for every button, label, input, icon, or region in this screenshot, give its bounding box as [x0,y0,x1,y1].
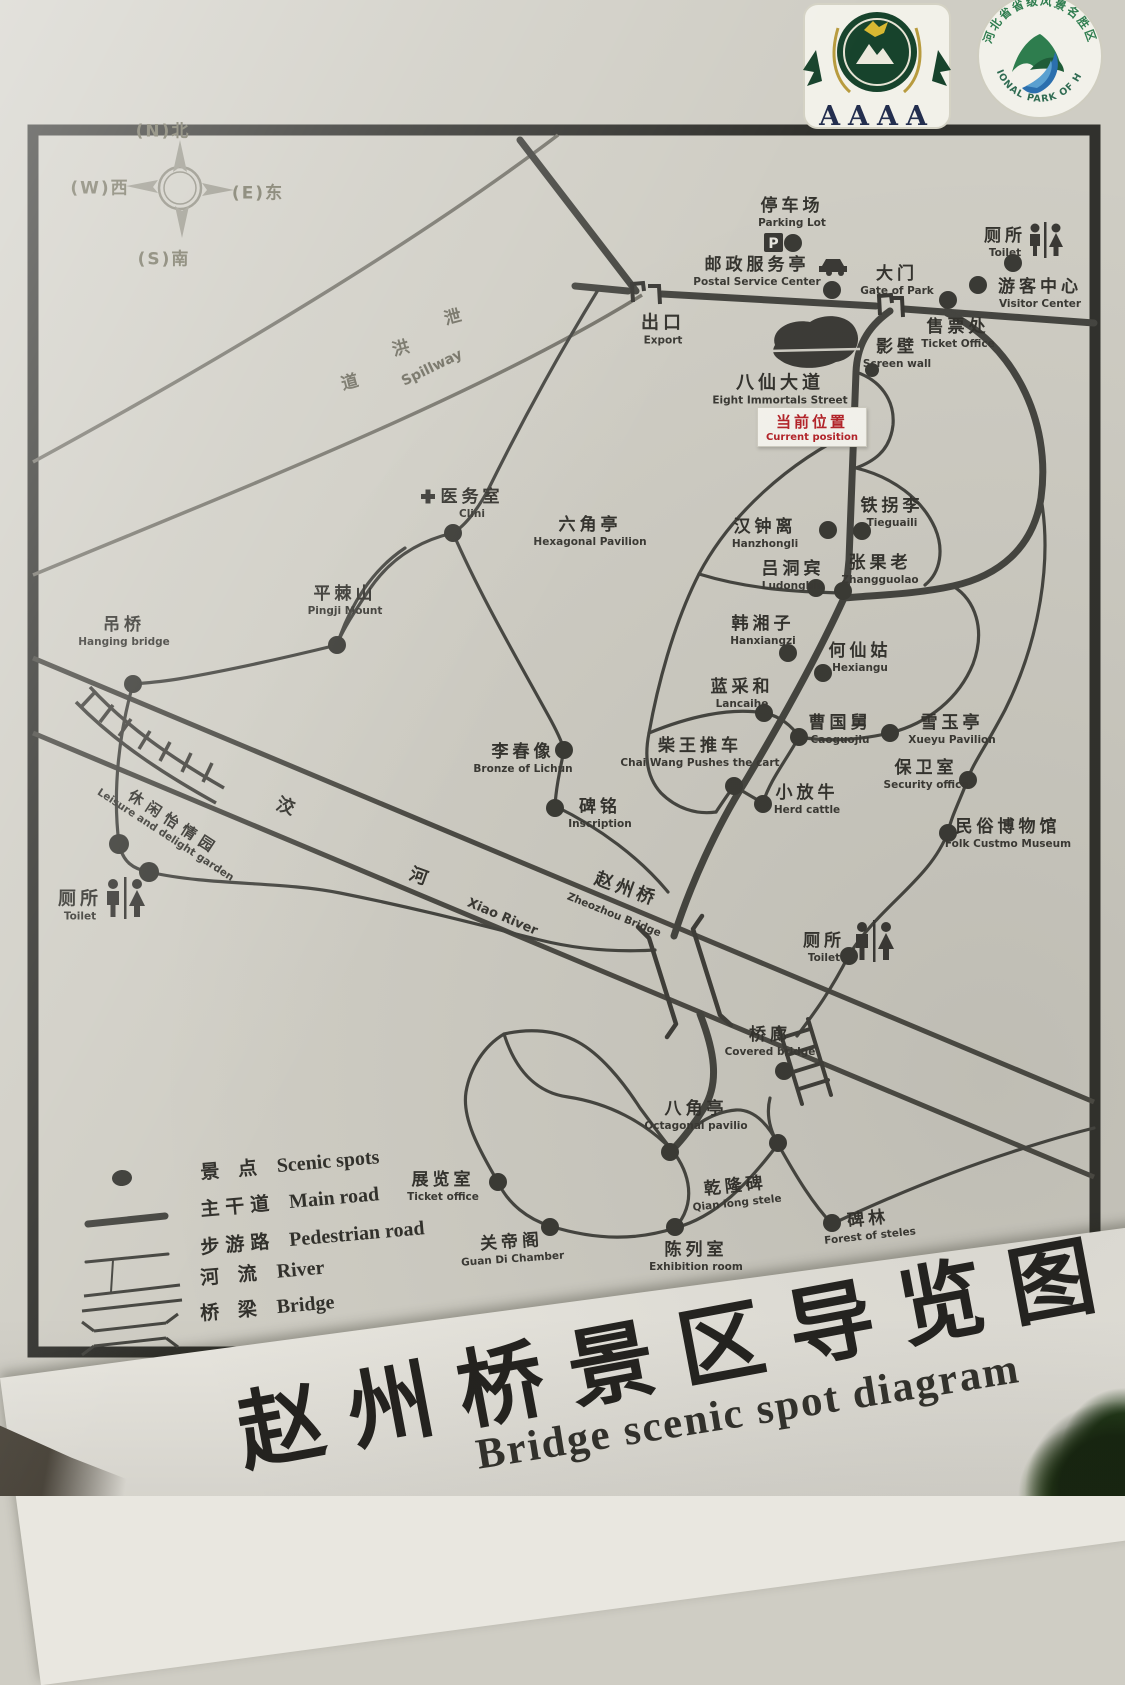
svg-text:P: P [768,236,778,252]
spot-tieguaili: 铁拐李Tieguaili [861,497,924,529]
spot-herd-cattle: 小放牛Herd cattle [774,784,840,816]
spillway-channel [33,135,642,575]
spot-toilet-west: 厕所Toilet [58,890,102,923]
spot-hanzhongli: 汉钟离Hanzhongli [732,518,798,550]
legend-icons [82,1169,182,1355]
spot-inscription: 碑铭Inscription [568,798,631,830]
spot-xueyu-pavilion: 雪玉亭Xueyu Pavilion [908,714,996,746]
spot-hanxiangzi: 韩湘子Hanxiangzi [730,615,796,647]
current-position-box: 当前位置 Current position [757,407,867,447]
spot-hexiangu: 何仙姑Hexiangu [829,642,892,674]
spot-pingji-mount: 平棘山Pingji Mount [308,585,383,617]
compass-north-label: (N)北 [136,117,191,142]
compass-east-label: (E)东 [232,179,284,204]
spot-toilet-north: 厕所Toilet [984,227,1026,259]
map-sign-photo: P [0,0,1125,1496]
scenic-spot-dots [109,234,1022,1236]
spot-hanging-bridge: 吊桥Hanging bridge [78,616,170,648]
spot-ticket-office-north: 售票处Ticket Office [921,318,994,350]
spot-caoguojiu: 曹国舅Caoguojiu [809,714,872,746]
spot-ticket-office-south: 展览室Ticket office [407,1171,479,1203]
spot-postal-service: 邮政服务亭Postal Service Center [693,256,820,288]
spot-zhangguolao: 张果老Zhangguolao [841,554,918,586]
toilet-icon-south [856,920,894,962]
spot-security-office: 保卫室Security office [884,759,969,791]
pond [768,316,860,368]
label-eight-immortals-street: 八仙大道Eight Immortals Street [712,374,847,407]
spot-chai-wang: 柴王推车Chai Wang Pushes the cart [620,737,779,769]
foliage [1015,1386,1125,1496]
toilet-icon-west [107,877,145,919]
spot-exit: 出口Export [641,314,685,347]
spot-parking-lot: 停车场Parking Lot [758,197,826,229]
spot-screen-wall: 影壁Screen wall [863,338,931,370]
clinic-cross-icon [421,490,435,504]
compass-rose [126,140,234,238]
aaaa-text: AAAA [818,101,935,132]
spot-ludongbin: 吕洞宾Ludongbin [762,560,825,592]
spot-covered-bridge: 桥廊Covered bridge [725,1026,816,1058]
toilet-icon-north [1030,222,1063,258]
spot-bronze-of-lichun: 李春像Bronze of Lichun [473,743,572,775]
spot-toilet-south: 厕所Toilet [803,932,845,964]
spot-gate-of-park: 大门Gate of Park [860,265,934,297]
spot-octagonal-pavilion: 八角亭Octagonal pavilio [644,1100,747,1132]
spot-hexagonal-pavilion: 六角亭Hexagonal Pavilion [533,516,646,548]
spot-visitor-center: 游客中心Visitor Center [998,278,1082,310]
compass-south-label: (S)南 [138,245,191,270]
aaaa-badge: AAAA [803,4,951,132]
spot-lancaihe: 蓝采和Lancaihe [711,678,774,710]
spot-exhibition-room: 陈列室Exhibition room [649,1241,743,1273]
car-icon [819,259,847,276]
spot-clinic: 医务室Clini [441,488,504,520]
spot-folk-museum: 民俗博物馆Folk Custmo Museum [945,818,1071,850]
parking-icon: P [764,233,783,252]
compass-west-label: (W)西 [70,174,129,199]
